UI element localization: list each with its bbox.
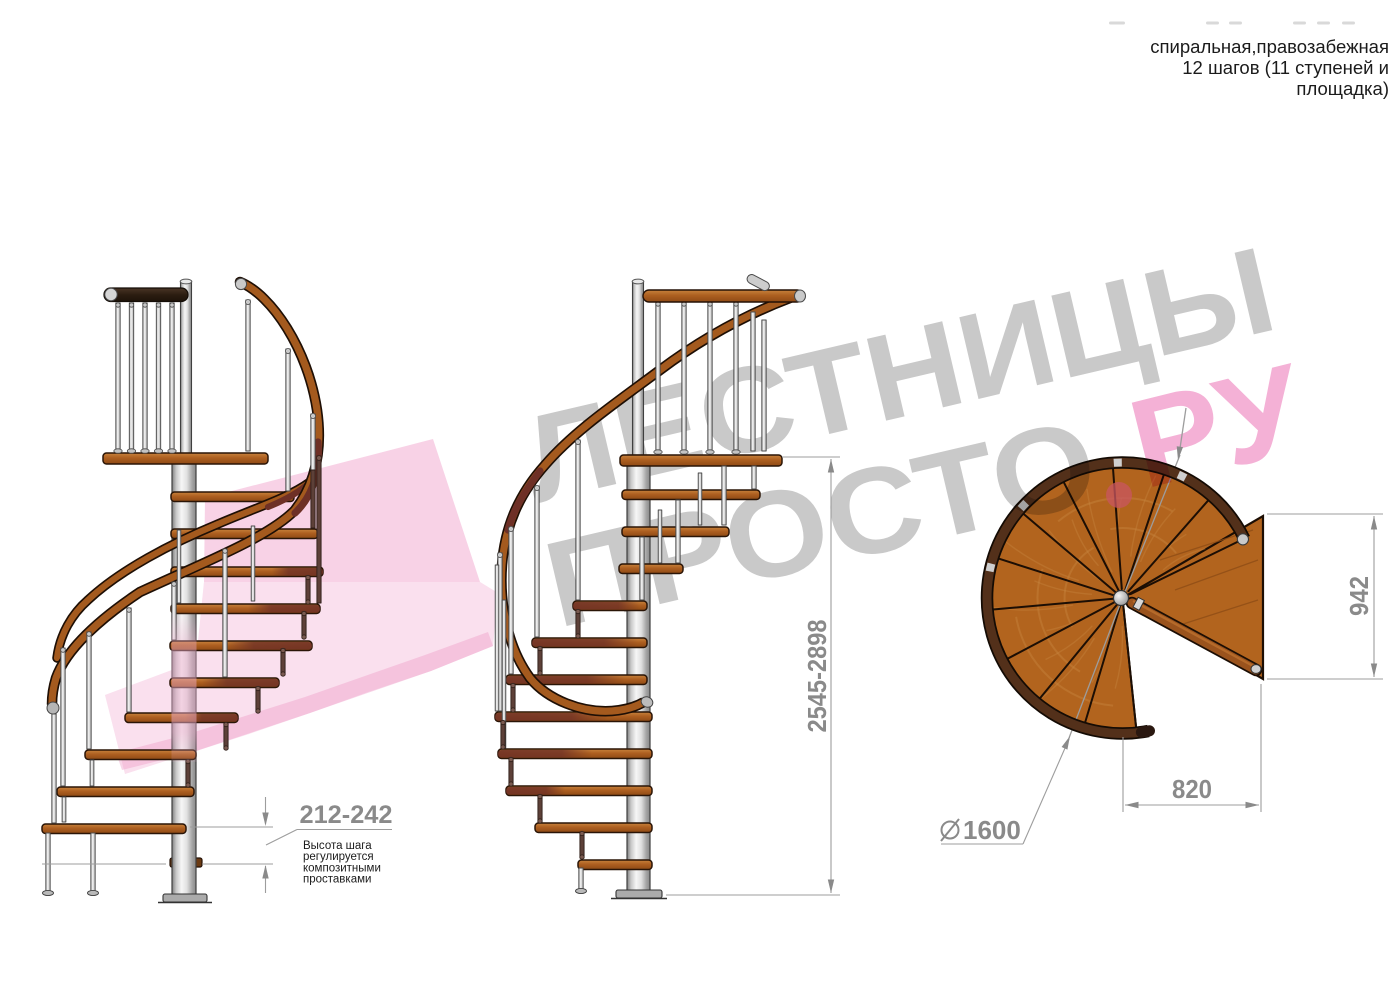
svg-text:212-242: 212-242 (300, 801, 393, 829)
svg-text:942: 942 (1344, 576, 1374, 616)
svg-text:820: 820 (1172, 774, 1212, 804)
svg-text:2545-2898: 2545-2898 (802, 620, 832, 733)
svg-text:Высота шагарегулируетсякомпози: Высота шагарегулируетсякомпозитнымипрост… (303, 840, 381, 886)
svg-text:1600: 1600 (963, 815, 1021, 845)
